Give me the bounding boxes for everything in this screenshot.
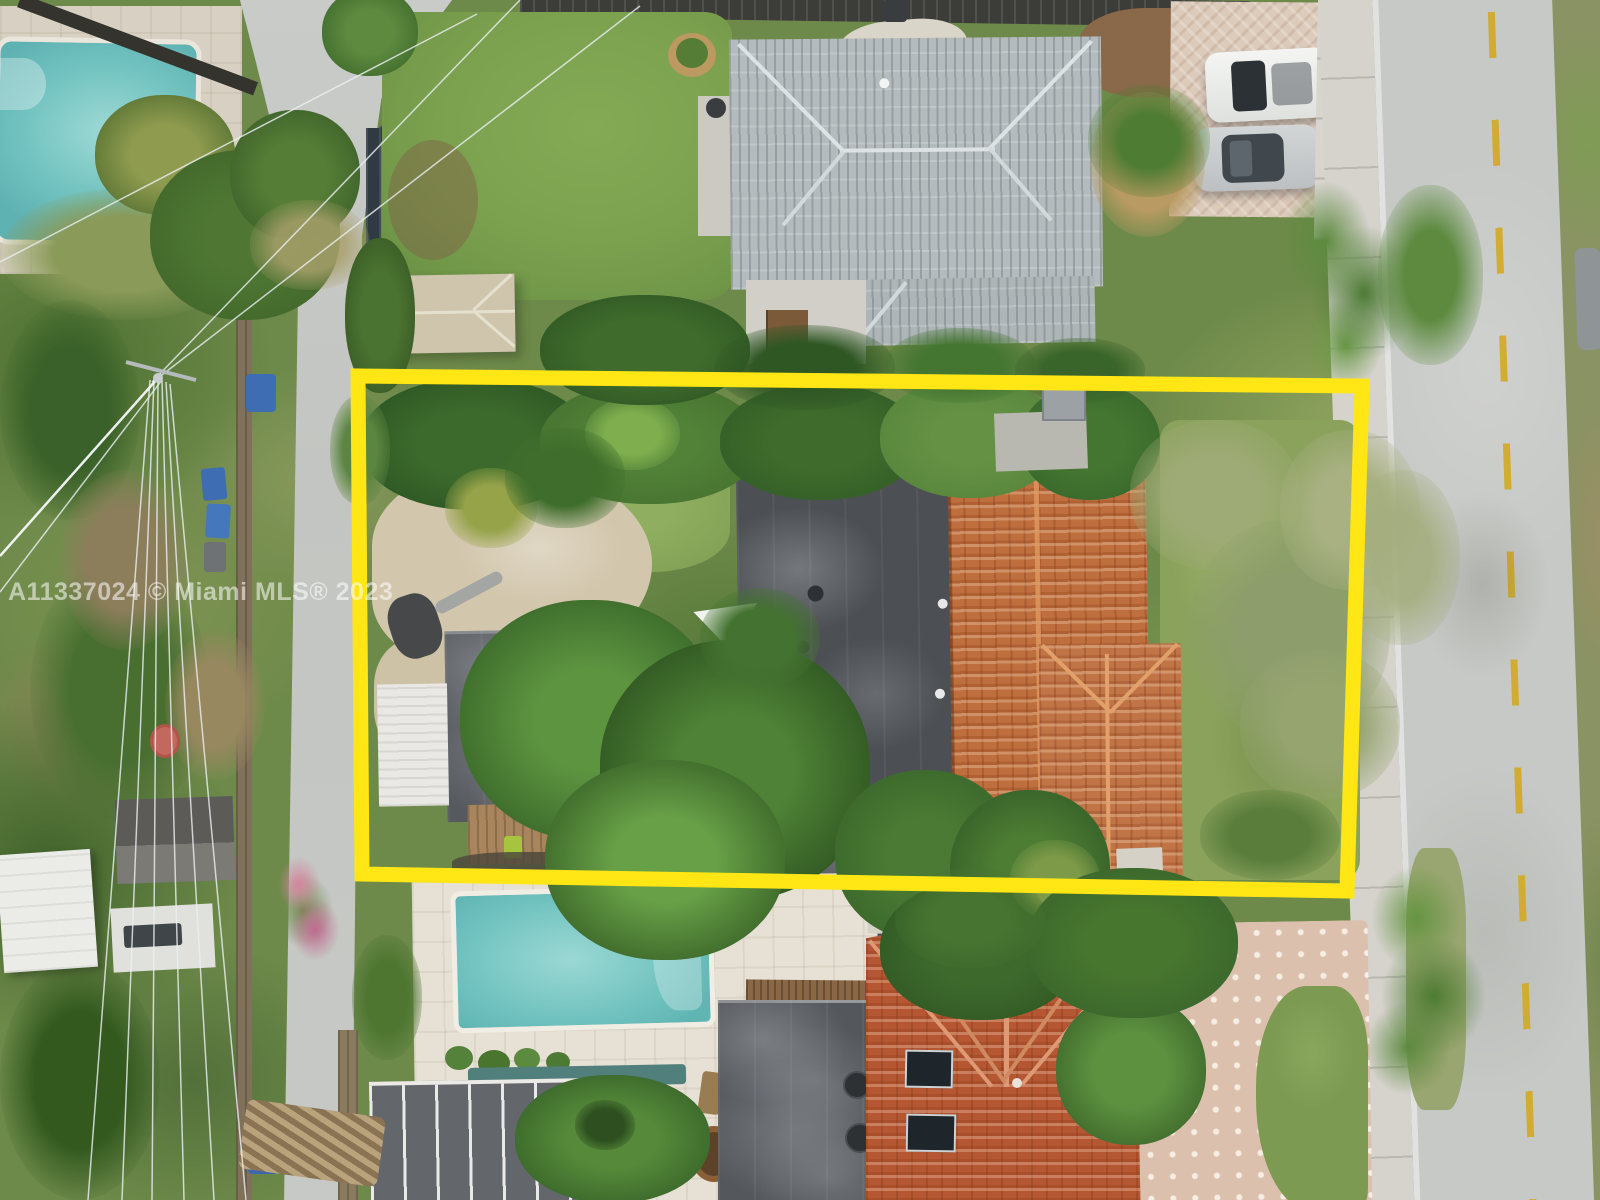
utility-pole [153,373,163,383]
pool-steps [0,58,46,110]
kiddie-pool-red [150,724,180,758]
hedge-west [330,395,390,505]
parked-car-edge [1574,248,1600,351]
large-shade-tree [545,760,785,960]
dry-tree [1240,650,1400,800]
palm-over-deck-core [575,1100,635,1150]
bushes-deck-west [352,935,422,1060]
dirt-patch [165,630,265,780]
blue-bin [205,503,231,538]
shed-roof [115,796,236,884]
white-trailer-roof [0,849,98,973]
white-suv [1204,47,1331,123]
palm-top [676,38,708,68]
lumber-pile [238,1099,386,1188]
palm-dark [505,428,625,528]
shrub [0,960,160,1200]
aerial-photo: A11337024 © Miami MLS® 2023 [0,0,1600,1200]
hedge [540,295,750,405]
grill-by-fence [883,0,907,22]
bougainvillea [268,846,346,974]
palm-cluster-se [1340,840,1510,1100]
dirt-patch [60,470,190,650]
tree-over-red-roof [1028,868,1238,1018]
palm-on-ring [1088,85,1210,197]
gray-bin [204,542,226,572]
bush [445,1046,473,1070]
tree-over-red-roof [895,868,1045,968]
bushes-east [1200,790,1340,880]
hedge [885,328,1035,403]
blue-bin [246,374,276,412]
neighbor-house-flat-roof-south [718,1000,880,1200]
camper-roof [110,903,215,972]
ac-units [1042,385,1086,421]
large-shade-tree [700,588,820,688]
dry-tree-overhang [1345,470,1460,645]
mulch-patch [388,140,478,260]
carport-awning [377,683,449,806]
blue-bin [201,467,228,501]
hedge-west [345,238,415,393]
grill [706,98,726,118]
mls-watermark: A11337024 © Miami MLS® 2023 [8,578,393,607]
hedge [715,325,895,410]
skylight [905,1050,954,1089]
neighbor-house-gray-tile-roof [729,36,1103,289]
palm-over-street [1378,185,1483,365]
skylight [906,1114,957,1153]
